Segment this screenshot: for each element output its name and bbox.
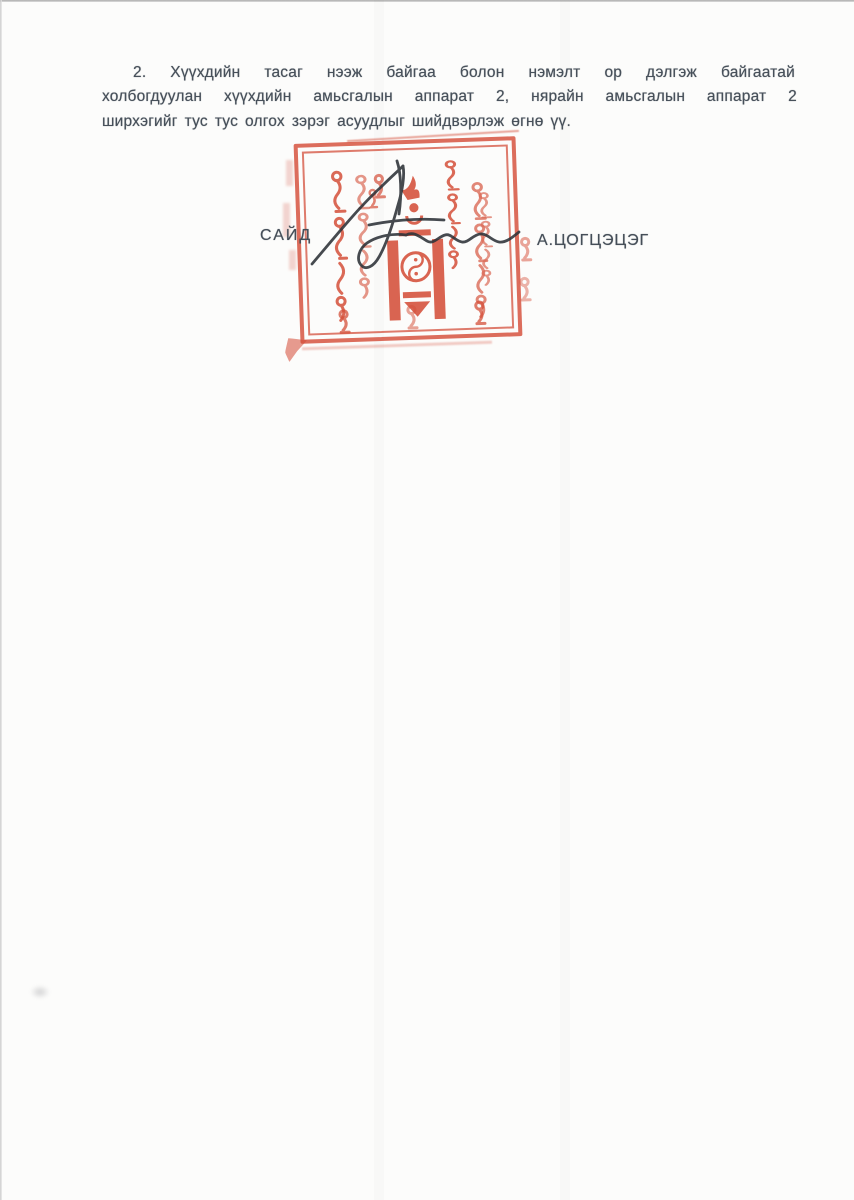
scan-edge-left xyxy=(0,0,2,1200)
document-page: 2. Хүүхдийн тасаг нээж байгаа болон нэмэ… xyxy=(0,0,854,1200)
minister-name: А.ЦОГЦЭЦЭГ xyxy=(537,232,649,250)
scan-streak xyxy=(560,0,570,1200)
minister-title: САЙД xyxy=(260,227,312,245)
stamp-ink-smudge xyxy=(289,250,296,270)
paragraph-line-1: 2. Хүүхдийн тасаг нээж байгаа болон нэмэ… xyxy=(133,63,795,85)
scan-edge-top xyxy=(0,0,854,2)
scan-smudge xyxy=(30,985,50,999)
signature xyxy=(300,148,530,278)
paragraph-line-3: ширхэгийг тус тус олгох зэрэг асуудлыг ш… xyxy=(102,112,797,134)
stamp-ink-smudge xyxy=(286,160,293,186)
paragraph-line-2: холбогдуулан хүүхдийн амьсгалын аппарат … xyxy=(102,87,797,109)
